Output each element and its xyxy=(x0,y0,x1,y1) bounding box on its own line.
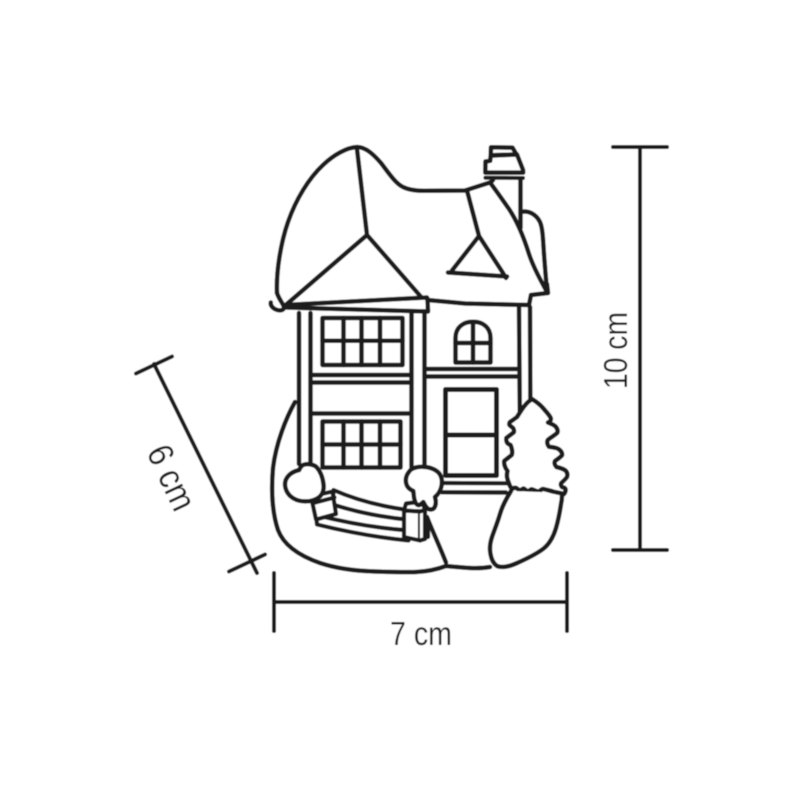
svg-text:7 cm: 7 cm xyxy=(390,615,452,652)
svg-text:10 cm: 10 cm xyxy=(597,312,634,389)
